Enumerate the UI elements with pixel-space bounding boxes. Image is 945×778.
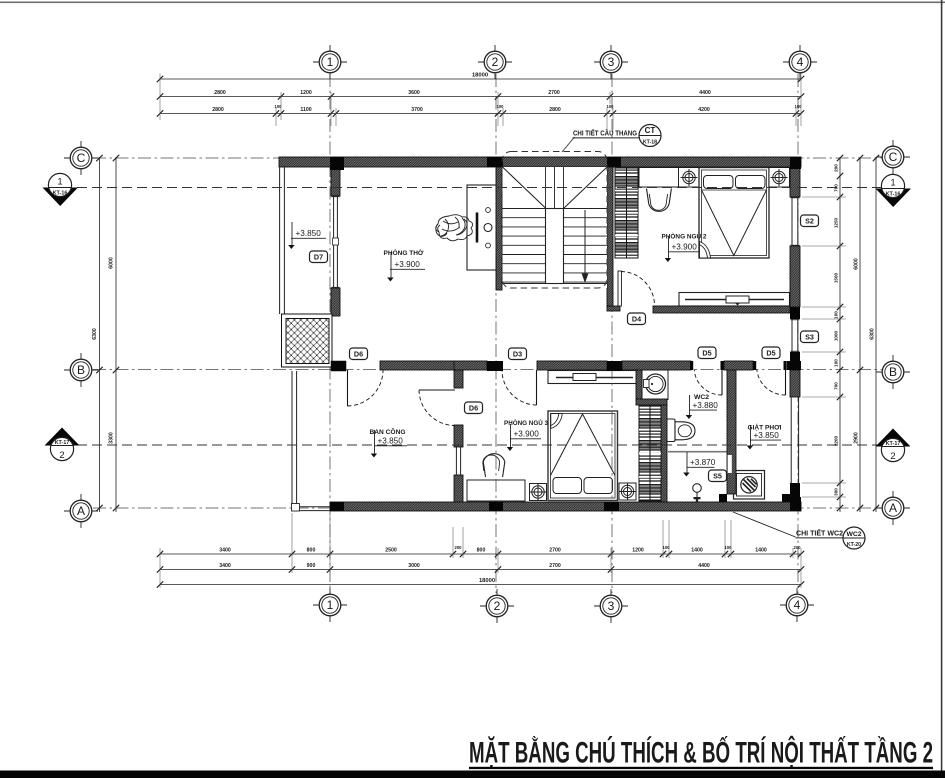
svg-text:CHI TIẾT CẦU THANG: CHI TIẾT CẦU THANG <box>573 128 637 138</box>
svg-text:4200: 4200 <box>698 107 710 113</box>
svg-text:200: 200 <box>834 164 839 172</box>
svg-text:KT-18: KT-18 <box>643 140 657 146</box>
svg-text:2: 2 <box>59 450 64 461</box>
svg-text:3400: 3400 <box>219 548 231 554</box>
svg-text:2800: 2800 <box>214 90 226 96</box>
svg-text:D6: D6 <box>354 350 363 359</box>
svg-text:1200: 1200 <box>632 548 644 554</box>
svg-text:1: 1 <box>890 178 895 189</box>
svg-text:300: 300 <box>834 488 839 496</box>
svg-text:B: B <box>77 363 85 377</box>
svg-text:3400: 3400 <box>219 563 231 569</box>
svg-text:D4: D4 <box>632 315 641 324</box>
svg-text:3600: 3600 <box>408 90 420 96</box>
svg-text:KT-17: KT-17 <box>55 440 70 446</box>
svg-text:800: 800 <box>477 548 486 554</box>
svg-text:A: A <box>889 501 897 515</box>
svg-text:S3: S3 <box>805 333 814 342</box>
svg-text:C: C <box>77 151 86 165</box>
svg-text:18000: 18000 <box>472 73 488 79</box>
svg-text:2200: 2200 <box>834 435 839 446</box>
svg-text:3300: 3300 <box>109 432 115 444</box>
svg-text:D5: D5 <box>702 349 711 358</box>
svg-text:4: 4 <box>797 55 804 69</box>
svg-text:+3.850: +3.850 <box>296 229 322 238</box>
svg-text:4400: 4400 <box>698 563 710 569</box>
svg-text:CT: CT <box>645 126 656 135</box>
svg-text:1400: 1400 <box>691 548 703 554</box>
svg-text:2: 2 <box>890 451 895 462</box>
svg-text:200: 200 <box>455 545 463 550</box>
svg-text:D5: D5 <box>766 349 775 358</box>
svg-text:KT-16: KT-16 <box>886 192 901 198</box>
svg-text:100: 100 <box>834 311 839 319</box>
svg-text:100: 100 <box>497 104 505 109</box>
svg-text:2700: 2700 <box>548 90 560 96</box>
svg-text:1000: 1000 <box>834 330 839 341</box>
svg-text:D6: D6 <box>469 404 478 413</box>
svg-text:2900: 2900 <box>854 432 860 444</box>
svg-text:B: B <box>889 365 897 379</box>
svg-text:900: 900 <box>307 563 316 569</box>
svg-text:2800: 2800 <box>549 107 561 113</box>
svg-text:100: 100 <box>275 104 283 109</box>
svg-text:S2: S2 <box>805 217 814 226</box>
svg-text:3: 3 <box>608 55 615 69</box>
svg-text:KT-20: KT-20 <box>847 542 861 548</box>
svg-text:200: 200 <box>794 545 802 550</box>
svg-text:C: C <box>889 150 898 164</box>
svg-text:6000: 6000 <box>109 257 115 269</box>
svg-text:4400: 4400 <box>699 90 711 96</box>
svg-text:+3.850: +3.850 <box>378 437 404 446</box>
svg-text:6300: 6300 <box>870 328 876 340</box>
svg-text:2700: 2700 <box>549 548 561 554</box>
svg-text:1250: 1250 <box>834 217 839 228</box>
svg-text:3000: 3000 <box>408 563 420 569</box>
svg-text:2800: 2800 <box>212 107 224 113</box>
svg-text:700: 700 <box>834 184 839 192</box>
svg-text:1200: 1200 <box>300 90 312 96</box>
svg-text:100: 100 <box>663 545 671 550</box>
svg-text:6300: 6300 <box>92 328 98 340</box>
svg-text:3700: 3700 <box>411 107 423 113</box>
svg-text:KT-17: KT-17 <box>886 441 901 447</box>
svg-text:2500: 2500 <box>385 548 397 554</box>
svg-text:100: 100 <box>725 545 733 550</box>
svg-text:1400: 1400 <box>755 548 767 554</box>
svg-text:S5: S5 <box>713 472 722 481</box>
svg-text:100: 100 <box>607 104 615 109</box>
svg-text:CHI TIẾT WC2: CHI TIẾT WC2 <box>796 528 843 538</box>
svg-text:100: 100 <box>795 104 803 109</box>
svg-text:1500: 1500 <box>834 272 839 283</box>
svg-text:3: 3 <box>608 599 615 613</box>
svg-text:800: 800 <box>307 548 316 554</box>
svg-text:1: 1 <box>327 598 334 612</box>
svg-text:1: 1 <box>327 55 334 69</box>
svg-text:6000: 6000 <box>854 258 860 270</box>
svg-text:2: 2 <box>494 599 501 613</box>
svg-text:D3: D3 <box>513 350 522 359</box>
svg-text:MẶT BẰNG CHÚ THÍCH & BỐ TRÍ NỘ: MẶT BẰNG CHÚ THÍCH & BỐ TRÍ NỘI THẤT TẦN… <box>469 736 933 770</box>
svg-text:18000: 18000 <box>479 578 495 584</box>
svg-text:D7: D7 <box>314 253 323 262</box>
svg-text:+3.880: +3.880 <box>693 401 719 410</box>
svg-text:2700: 2700 <box>549 563 561 569</box>
svg-text:1: 1 <box>57 177 62 188</box>
svg-text:PHÒNG THỜ: PHÒNG THỜ <box>384 248 424 257</box>
svg-text:A: A <box>77 504 85 518</box>
svg-text:+3.900: +3.900 <box>672 243 698 252</box>
svg-text:+3.900: +3.900 <box>395 260 421 269</box>
svg-text:KT-16: KT-16 <box>53 191 68 197</box>
svg-text:100: 100 <box>834 359 839 367</box>
svg-text:+3.850: +3.850 <box>754 431 780 440</box>
svg-text:2: 2 <box>492 55 499 69</box>
svg-text:4: 4 <box>794 598 801 612</box>
svg-text:+3.900: +3.900 <box>514 430 540 439</box>
svg-text:700: 700 <box>834 382 839 390</box>
svg-text:+3.870: +3.870 <box>690 458 716 467</box>
svg-text:1100: 1100 <box>300 107 311 113</box>
svg-text:WC2: WC2 <box>846 531 861 538</box>
